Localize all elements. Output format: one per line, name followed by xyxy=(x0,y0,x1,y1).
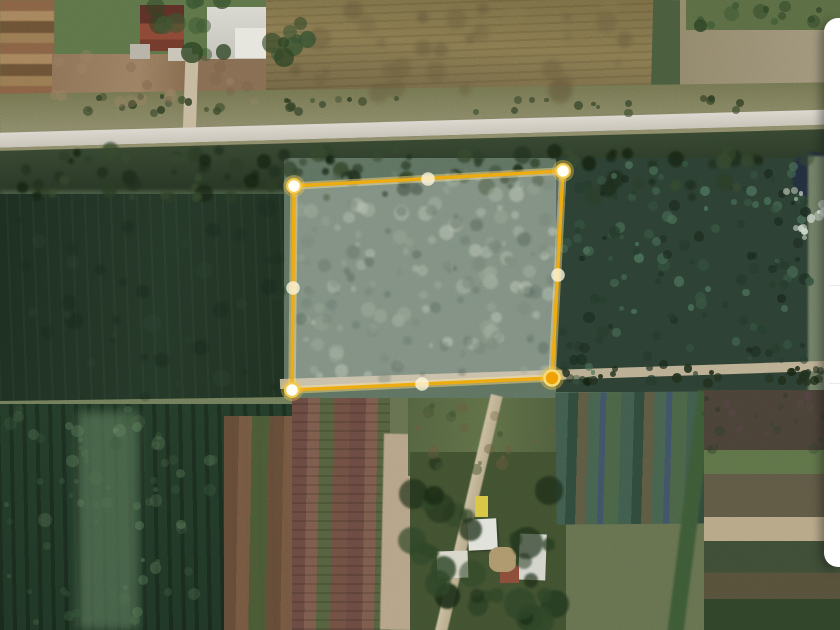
parcel-drawing-overlay xyxy=(0,0,840,630)
vertex-core xyxy=(288,180,300,192)
polygon-midpoint-handle[interactable] xyxy=(421,172,435,186)
panel-divider xyxy=(829,285,840,286)
polygon-midpoint-handle[interactable] xyxy=(286,281,300,295)
vertex-core xyxy=(546,372,558,384)
vertex-core xyxy=(557,165,569,177)
map-canvas[interactable] xyxy=(0,0,840,630)
panel-divider xyxy=(829,383,840,384)
polygon-midpoint-handle[interactable] xyxy=(551,268,565,282)
side-panel[interactable] xyxy=(824,18,840,567)
vertex-core xyxy=(286,384,298,396)
parcel-polygon[interactable] xyxy=(292,171,563,390)
polygon-midpoint-handle[interactable] xyxy=(415,377,429,391)
